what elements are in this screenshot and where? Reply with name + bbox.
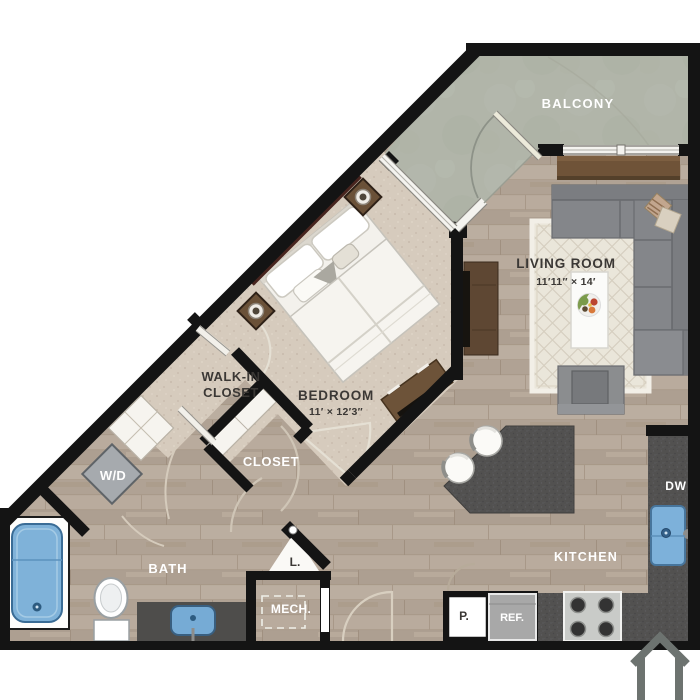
svg-text:W/D: W/D (100, 468, 126, 483)
svg-text:LIVING ROOM: LIVING ROOM (516, 256, 616, 271)
svg-text:KITCHEN: KITCHEN (554, 550, 618, 564)
svg-text:BALCONY: BALCONY (542, 96, 615, 111)
svg-text:CLOSET: CLOSET (203, 385, 259, 400)
svg-text:BATH: BATH (148, 561, 187, 576)
svg-text:P.: P. (459, 609, 469, 623)
svg-text:WALK-IN: WALK-IN (201, 369, 260, 384)
svg-text:REF.: REF. (500, 612, 524, 624)
svg-text:CLOSET: CLOSET (243, 454, 299, 469)
svg-text:MECH.: MECH. (271, 602, 311, 616)
svg-text:DW: DW (665, 479, 687, 493)
svg-text:11′ × 12′3″: 11′ × 12′3″ (309, 406, 363, 418)
svg-text:11′11″ × 14′: 11′11″ × 14′ (536, 276, 596, 288)
svg-text:L.: L. (290, 555, 301, 569)
svg-text:BEDROOM: BEDROOM (298, 388, 374, 403)
